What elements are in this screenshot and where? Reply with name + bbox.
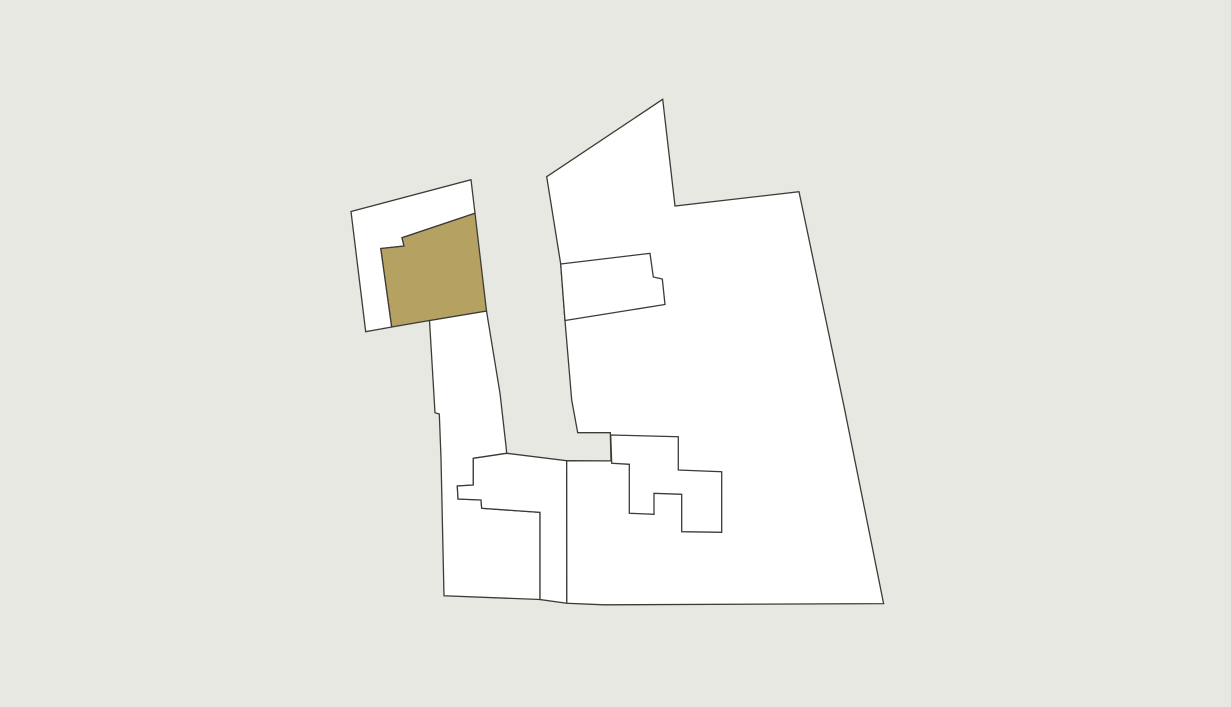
map-canvas[interactable] [0, 0, 1231, 707]
map-container [0, 0, 1231, 707]
